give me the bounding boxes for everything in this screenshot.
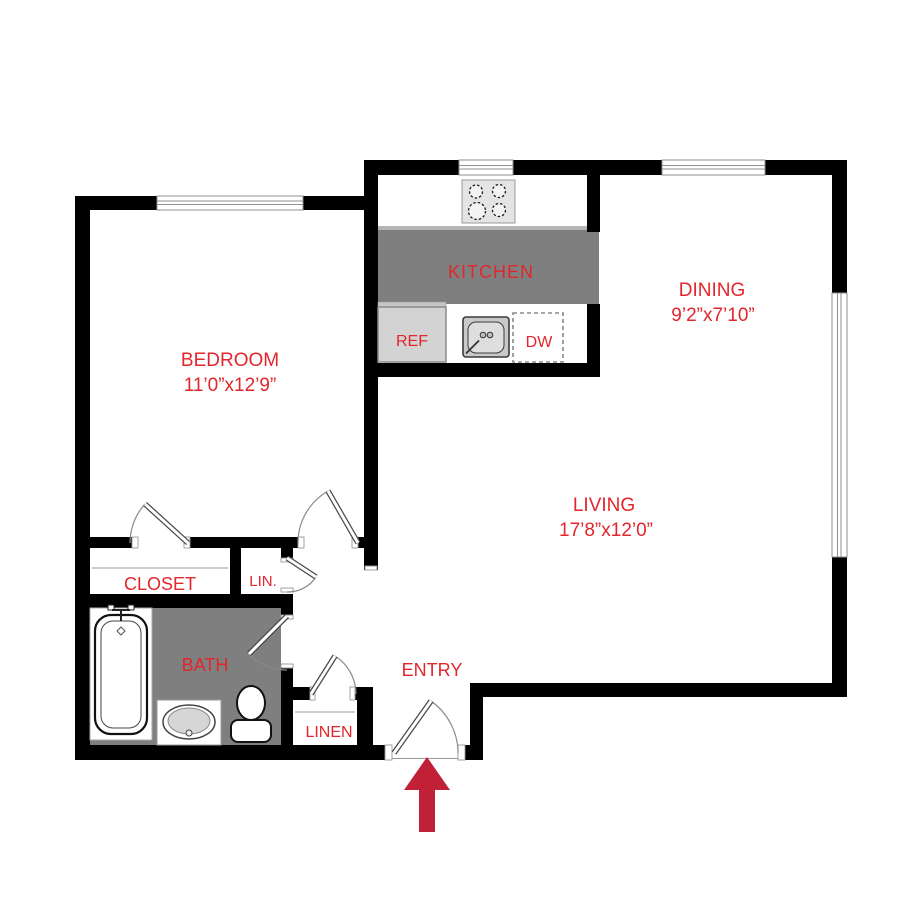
dw-label: DW	[526, 334, 554, 351]
living-dims: 17’8”x12’0”	[559, 520, 653, 541]
linen-label: LINEN	[305, 724, 352, 741]
closet-label: CLOSET	[124, 574, 196, 594]
bedroom-label: BEDROOM	[181, 350, 279, 371]
dining-window	[662, 160, 765, 175]
wall-end-cap	[365, 566, 377, 570]
ref-label: REF	[396, 333, 428, 350]
dining-label: DINING	[679, 280, 746, 301]
stove-icon	[462, 180, 515, 223]
floor-plan-svg: REF DW	[0, 0, 900, 900]
kitchen-label: KITCHEN	[448, 262, 534, 282]
lin-label: LIN.	[249, 573, 277, 590]
bath-label: BATH	[182, 655, 229, 675]
dining-dims: 9’2”x7’10”	[671, 305, 754, 326]
bedroom-window	[157, 196, 303, 210]
living-label: LIVING	[573, 495, 635, 516]
floor-plan: REF DW	[0, 0, 900, 900]
vanity-sink-icon	[157, 700, 221, 745]
kitchen-sink-icon	[463, 317, 509, 357]
dishwasher-icon: DW	[513, 313, 563, 362]
living-window	[832, 293, 847, 557]
stove-window	[459, 160, 513, 175]
bedroom-dims: 11’0”x12’9”	[184, 375, 277, 396]
plan-background	[0, 0, 900, 900]
entry-label: ENTRY	[402, 660, 463, 680]
refrigerator-icon: REF	[378, 302, 446, 362]
bathtub-icon	[90, 605, 152, 740]
